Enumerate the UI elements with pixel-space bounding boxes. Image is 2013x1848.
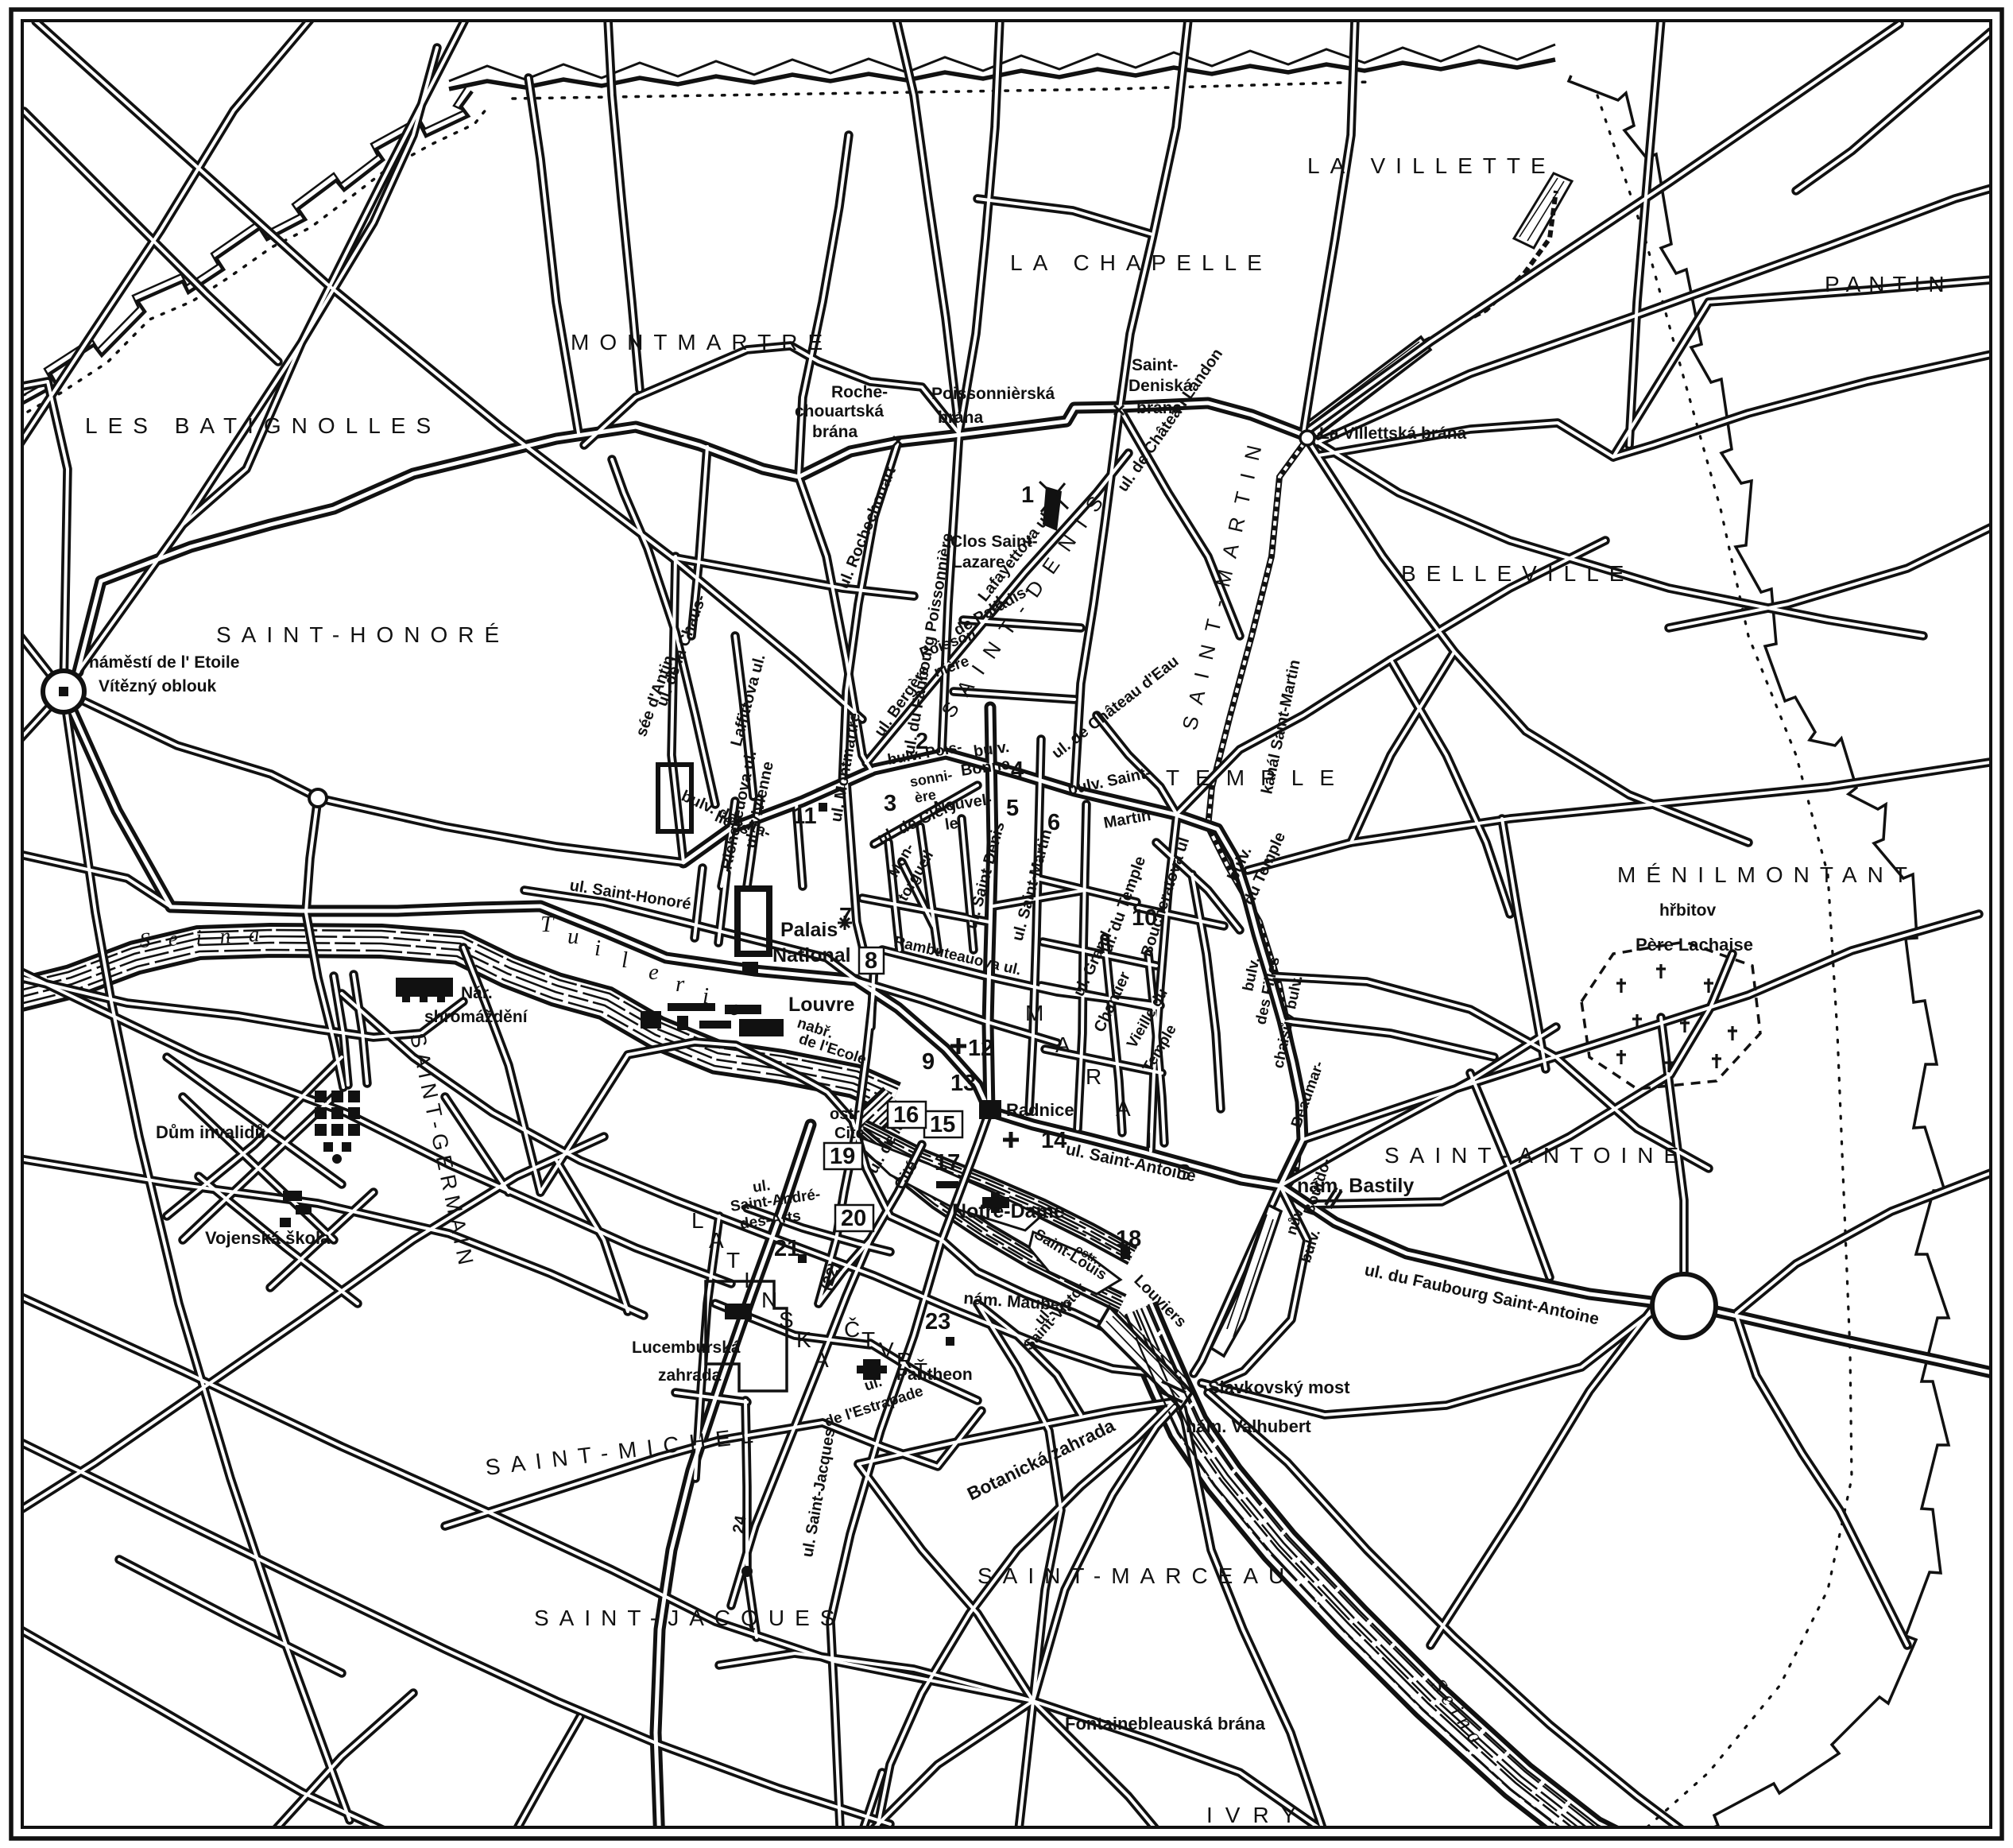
svg-text:9: 9 [922, 1049, 935, 1075]
svg-text:Slavkovský most: Slavkovský most [1208, 1377, 1350, 1397]
svg-text:20: 20 [841, 1206, 866, 1231]
svg-text:15: 15 [930, 1112, 955, 1137]
svg-text:18: 18 [1116, 1226, 1141, 1252]
svg-text:11: 11 [792, 804, 817, 829]
svg-text:u: u [567, 924, 579, 949]
svg-text:PANTIN: PANTIN [1825, 272, 1953, 296]
svg-text:MONTMARTRE: MONTMARTRE [571, 330, 833, 354]
svg-text:Vítězný oblouk: Vítězný oblouk [99, 677, 217, 695]
svg-text:16: 16 [893, 1102, 919, 1128]
svg-text:2: 2 [916, 729, 928, 754]
svg-text:10: 10 [1132, 905, 1157, 931]
svg-text:I: I [1146, 1128, 1152, 1153]
svg-text:Vojenská škola: Vojenská škola [205, 1228, 331, 1248]
svg-text:hřbitov: hřbitov [1659, 901, 1716, 920]
svg-text:Père Lachaise: Père Lachaise [1636, 935, 1753, 955]
svg-text:3: 3 [884, 791, 896, 816]
svg-text:shromáždění: shromáždění [424, 1008, 528, 1026]
svg-text:LES BATIGNOLLES: LES BATIGNOLLES [85, 413, 441, 438]
svg-text:SAINT-MARCEAU: SAINT-MARCEAU [977, 1563, 1295, 1588]
svg-text:e: e [648, 959, 659, 985]
svg-text:LA VILLETTE: LA VILLETTE [1307, 153, 1556, 178]
svg-text:N: N [761, 1288, 777, 1312]
svg-text:14: 14 [1041, 1128, 1067, 1153]
svg-text:7: 7 [839, 904, 852, 929]
svg-text:13: 13 [950, 1071, 976, 1096]
svg-text:Nár.: Nár. [461, 984, 493, 1002]
svg-text:Roche-: Roche- [831, 383, 888, 401]
svg-text:SAINT-HONORÉ: SAINT-HONORÉ [216, 622, 509, 647]
svg-text:12: 12 [968, 1036, 993, 1061]
svg-text:i: i [594, 936, 601, 961]
svg-text:nám. Valhubert: nám. Valhubert [1186, 1416, 1311, 1436]
svg-text:Lucemburská: Lucemburská [632, 1339, 741, 1357]
svg-text:V: V [879, 1338, 894, 1362]
svg-text:Fontainebleauská brána: Fontainebleauská brána [1065, 1714, 1266, 1734]
svg-text:Á: Á [814, 1347, 829, 1372]
svg-text:La Villettská brána: La Villettská brána [1319, 424, 1467, 443]
svg-text:Č: Č [844, 1317, 860, 1342]
svg-text:brána: brána [812, 423, 858, 441]
svg-text:S: S [779, 1308, 794, 1332]
svg-text:Radnice: Radnice [1006, 1100, 1074, 1120]
svg-text:i: i [703, 983, 709, 1009]
svg-text:19: 19 [830, 1144, 855, 1169]
svg-text:6: 6 [1047, 810, 1060, 835]
svg-text:Palais: Palais [780, 919, 838, 941]
svg-text:T: T [861, 1327, 875, 1352]
svg-text:l: l [621, 947, 628, 973]
svg-text:23: 23 [925, 1309, 950, 1335]
svg-text:21: 21 [774, 1236, 799, 1261]
svg-text:M: M [1025, 1001, 1043, 1025]
svg-text:A: A [1116, 1096, 1131, 1121]
svg-text:T: T [726, 1248, 740, 1273]
svg-text:4: 4 [1011, 757, 1024, 783]
svg-text:e: e [730, 995, 740, 1021]
svg-text:zahrada: zahrada [658, 1366, 722, 1385]
svg-text:I: I [744, 1268, 750, 1292]
svg-text:SAINT-ANTOINE: SAINT-ANTOINE [1384, 1143, 1689, 1168]
svg-text:L: L [691, 1208, 704, 1233]
svg-text:Cité: Cité [834, 1125, 865, 1142]
svg-text:R: R [1086, 1064, 1101, 1089]
svg-text:17: 17 [935, 1150, 960, 1176]
svg-text:BELLEVILLE: BELLEVILLE [1401, 561, 1634, 586]
svg-text:5: 5 [1006, 796, 1019, 821]
svg-text:r: r [676, 971, 685, 997]
svg-text:Pantheon: Pantheon [896, 1366, 973, 1384]
svg-text:K: K [796, 1327, 811, 1352]
svg-text:Notre-Dame: Notre-Dame [952, 1200, 1065, 1222]
svg-text:IVRY: IVRY [1206, 1803, 1309, 1827]
svg-text:brána: brána [938, 409, 984, 427]
svg-text:náměstí de l' Etoile: náměstí de l' Etoile [89, 653, 239, 672]
svg-text:8: 8 [865, 948, 877, 974]
svg-text:ostr.: ostr. [830, 1106, 863, 1123]
svg-text:Dům invalidů: Dům invalidů [156, 1122, 265, 1142]
svg-text:Saint-: Saint- [1132, 356, 1178, 374]
svg-text:Poissonnièrská: Poissonnièrská [931, 385, 1055, 403]
svg-text:TEMPLE: TEMPLE [1166, 765, 1350, 790]
svg-text:T: T [540, 912, 555, 937]
svg-text:SAINT-JACQUES: SAINT-JACQUES [534, 1606, 845, 1630]
svg-text:Louvre: Louvre [788, 994, 854, 1016]
svg-text:MÉNILMONTANT: MÉNILMONTANT [1617, 862, 1918, 887]
svg-text:A: A [1055, 1032, 1070, 1057]
svg-text:1: 1 [1021, 482, 1034, 508]
svg-text:LA CHAPELLE: LA CHAPELLE [1010, 250, 1272, 275]
svg-text:chouartská: chouartská [795, 402, 884, 420]
svg-text:A: A [709, 1228, 724, 1253]
svg-text:National: National [772, 944, 851, 967]
